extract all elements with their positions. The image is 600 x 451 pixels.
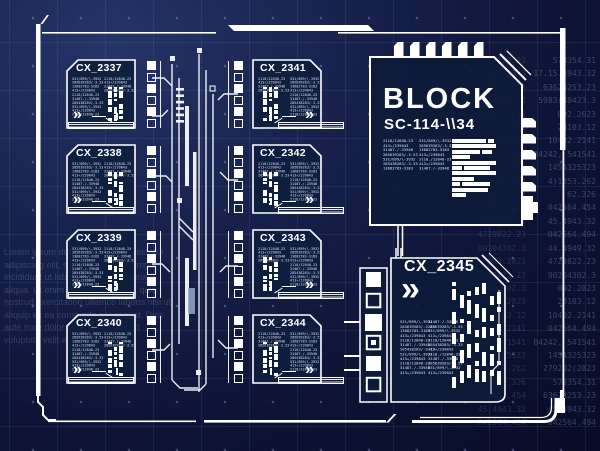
frame-decoration	[0, 0, 600, 451]
hud-page: Lorem ipsum dolor sit amet, consectetur …	[0, 0, 600, 451]
